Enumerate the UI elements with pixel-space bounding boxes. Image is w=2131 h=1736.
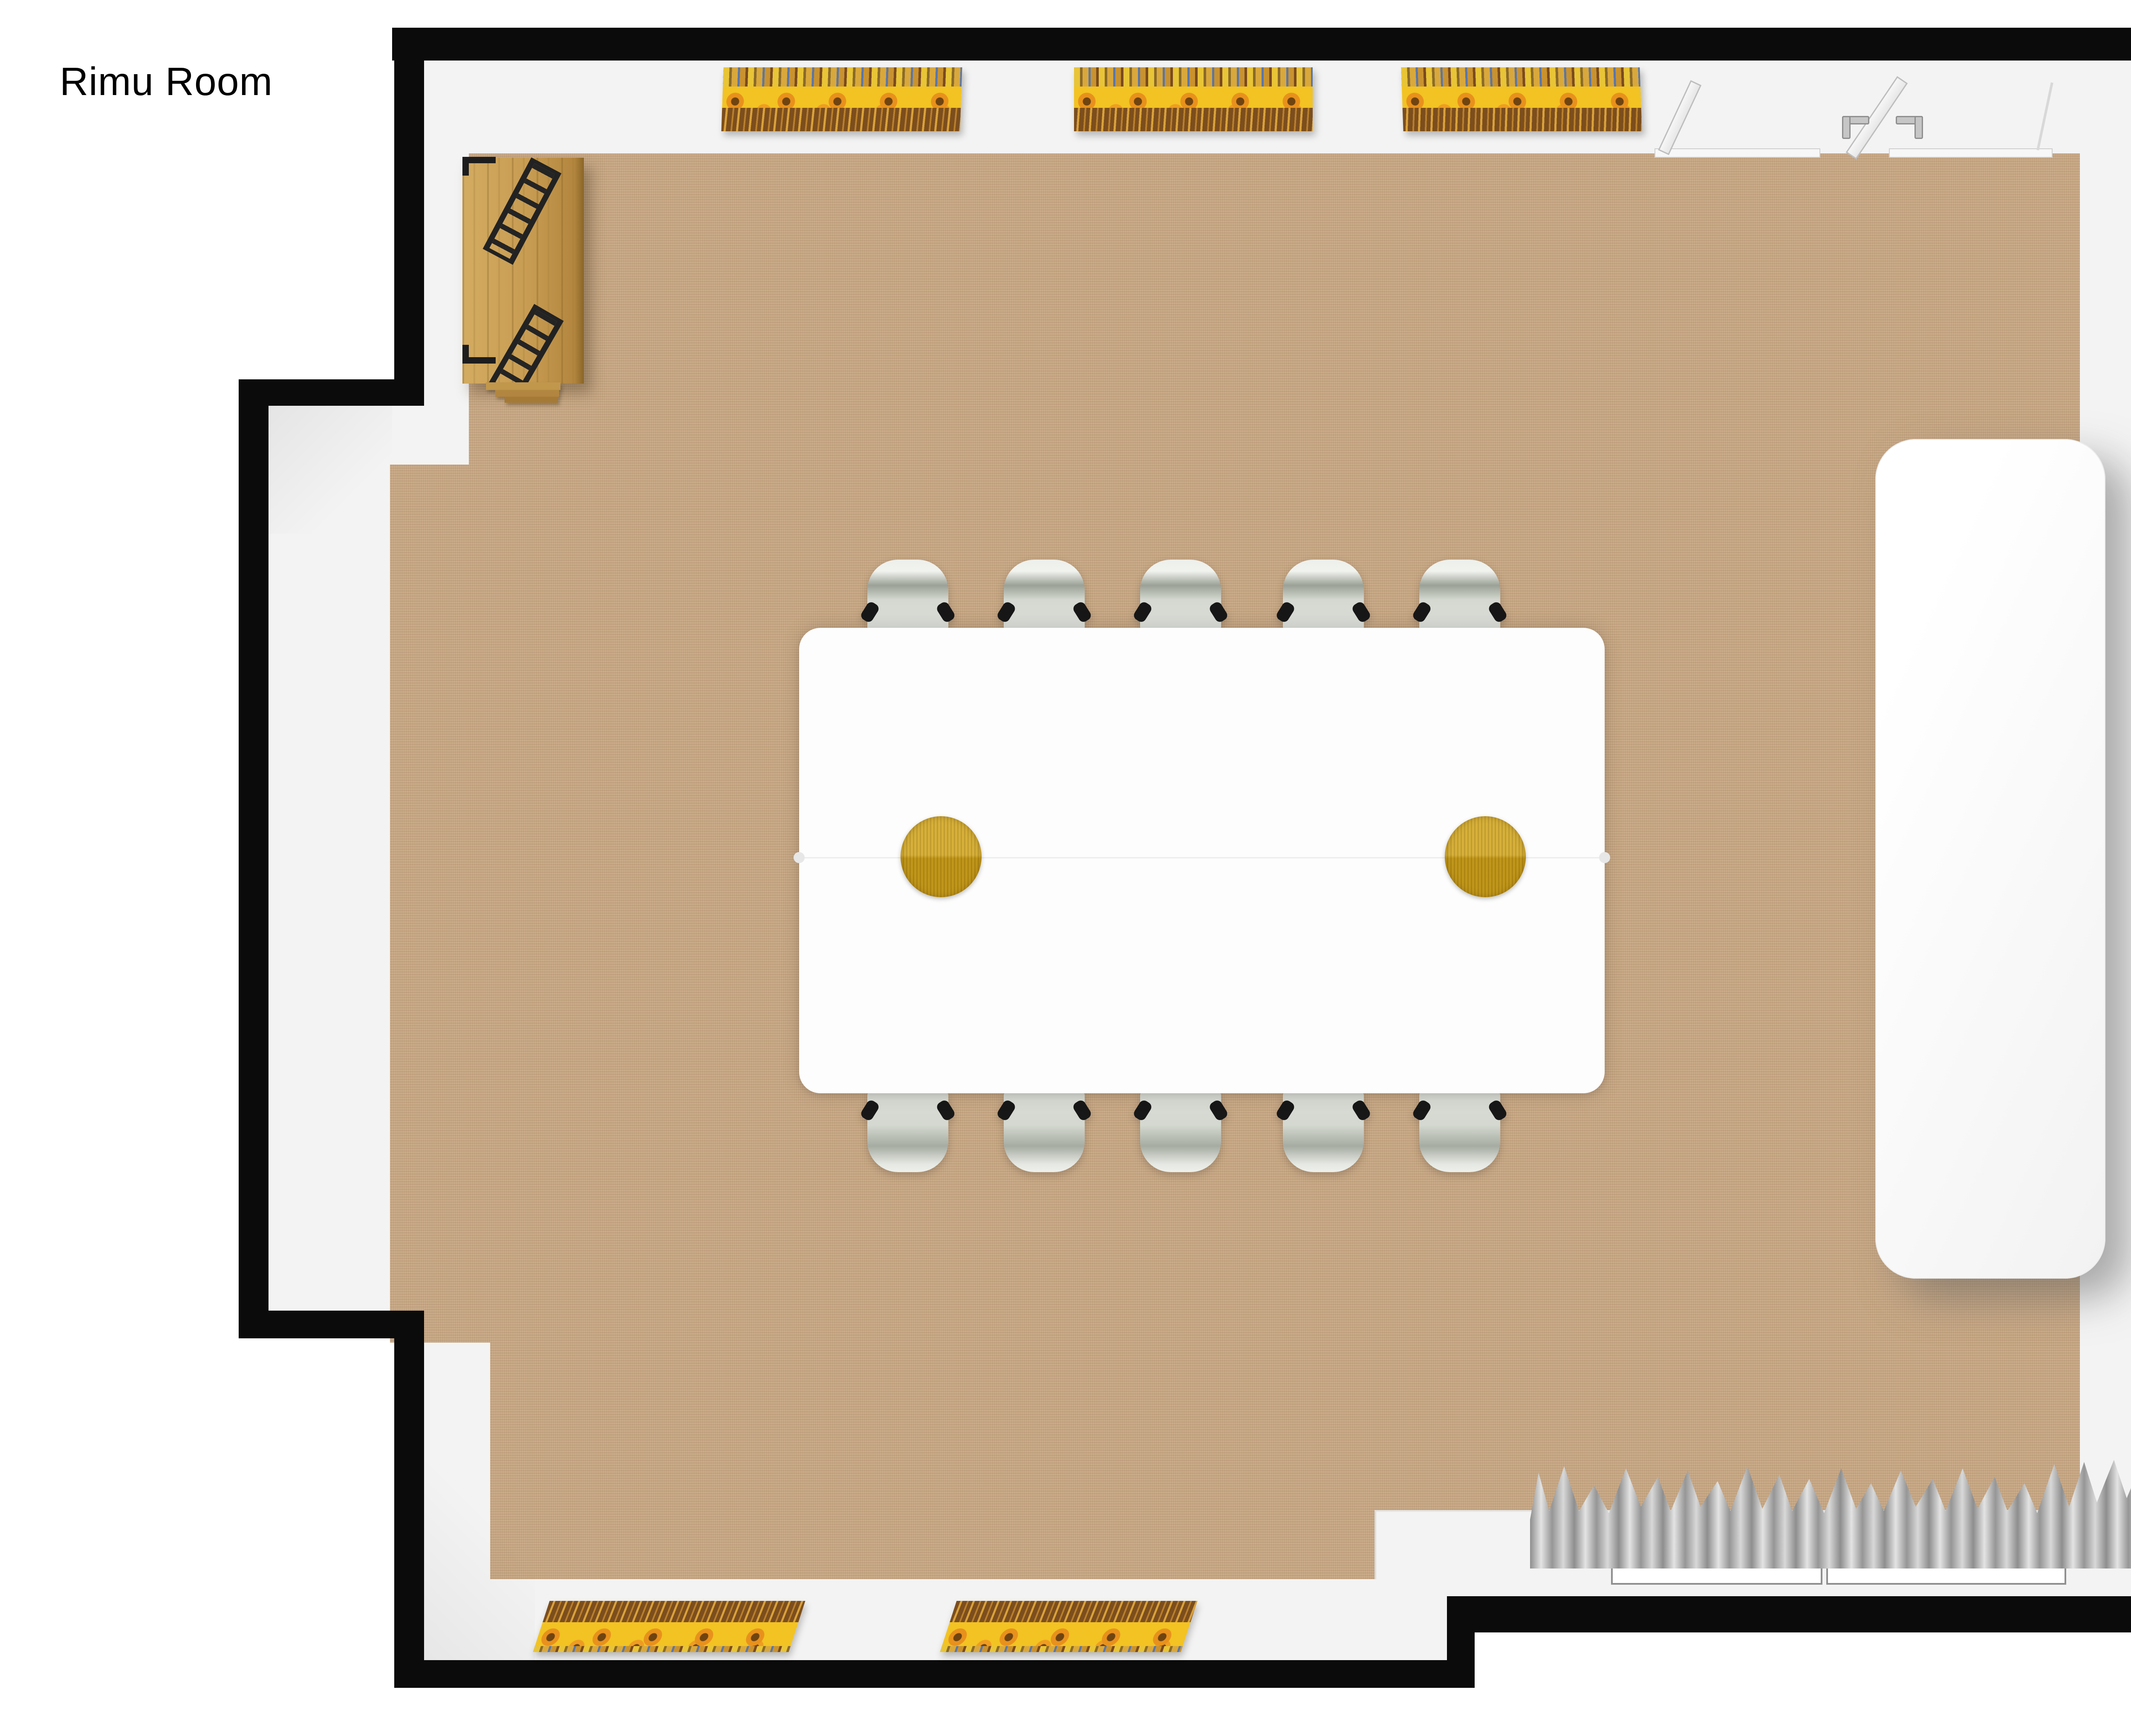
shelf-step [486, 382, 560, 390]
artwork-stripe-band [1401, 67, 1640, 87]
artwork-stem-band [950, 1601, 1197, 1622]
table-notch [794, 852, 805, 863]
artwork-stripe-band [533, 1646, 791, 1652]
door-threshold-right [1889, 148, 2053, 158]
artwork-flower-band [1402, 87, 1641, 108]
chair [1419, 560, 1500, 631]
door-handle-icon [1914, 116, 1923, 139]
shelf-bracket [462, 157, 469, 176]
chair [1004, 1091, 1085, 1172]
chair [1419, 1091, 1500, 1172]
artwork-top-3 [1401, 67, 1642, 131]
artwork-flower-band [1074, 87, 1313, 108]
artwork-stem-band [1074, 108, 1313, 132]
artwork-flower-band [535, 1622, 798, 1646]
chair [1283, 560, 1364, 631]
table-notch [1599, 852, 1610, 863]
chair [1283, 1091, 1364, 1172]
artwork-bottom-1 [533, 1601, 806, 1652]
round-placemat [901, 816, 982, 897]
shelf-bracket [462, 345, 469, 364]
wall-bottom-left [394, 1660, 1475, 1688]
round-placemat [1445, 816, 1526, 897]
wall-far-left [239, 379, 269, 1338]
artwork-top-1 [721, 67, 962, 131]
artwork-stem-band [721, 108, 961, 132]
whiteboard-cabinet [1875, 439, 2105, 1279]
wall-top [392, 28, 2131, 61]
room-name-label: Rimu Room [60, 59, 273, 104]
chair [1140, 1091, 1221, 1172]
artwork-top-2 [1074, 67, 1313, 131]
window-sill-step [1374, 1511, 1376, 1579]
door-threshold-left [1655, 148, 1820, 158]
artwork-flower-band [722, 87, 962, 108]
shelf-step [505, 397, 558, 403]
chair [1004, 560, 1085, 631]
floor-plan: Rimu Room [0, 0, 2131, 1736]
chair [1140, 560, 1221, 631]
shelf-step [495, 390, 559, 397]
wall-left-lower [394, 1311, 424, 1688]
artwork-stem-band [543, 1601, 805, 1622]
artwork-flower-band [942, 1622, 1190, 1646]
artwork-stem-band [1403, 108, 1642, 132]
chair [867, 560, 948, 631]
door-handle-icon [1842, 116, 1851, 139]
artwork-stripe-band [940, 1646, 1183, 1652]
artwork-bottom-2 [940, 1601, 1198, 1652]
artwork-stripe-band [723, 67, 962, 87]
wall-left-upper [394, 28, 424, 406]
chair [867, 1091, 948, 1172]
wall-bottom-right [1447, 1596, 2131, 1632]
artwork-stripe-band [1074, 67, 1313, 87]
